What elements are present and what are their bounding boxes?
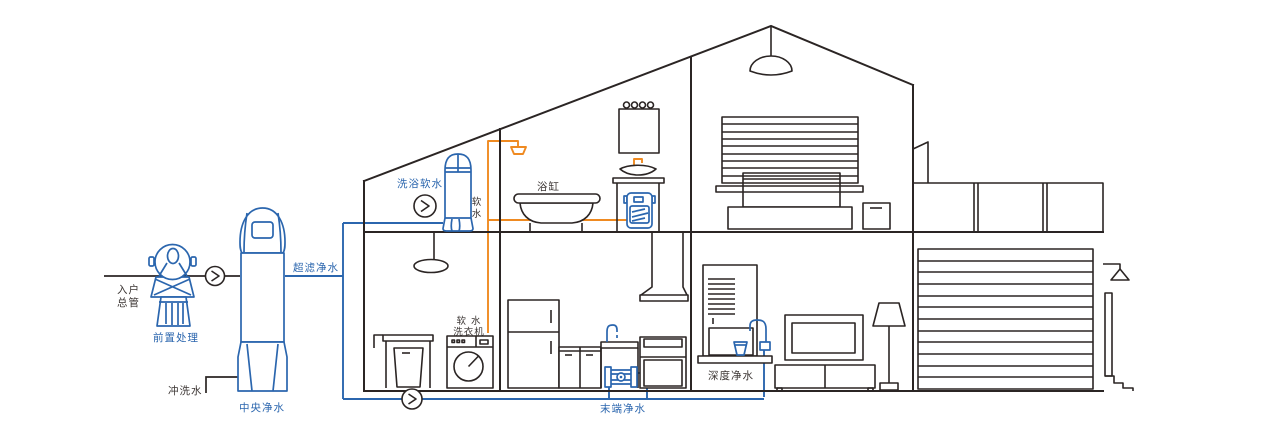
- bathtub: [514, 194, 600, 231]
- flush-water-pipe: [206, 377, 238, 393]
- floor-lamp: [873, 303, 905, 390]
- louver-cabinet: [703, 265, 757, 356]
- washing-machine: [447, 336, 493, 388]
- flow-indicator-inlet: [206, 267, 225, 286]
- label-ultrafiltration: 超滤净水: [293, 261, 339, 274]
- label-terminal-purification: 末端净水: [600, 402, 646, 415]
- label-main-inlet-line2: 总管: [117, 296, 140, 309]
- label-central-purification: 中央净水: [239, 401, 285, 414]
- kitchen-faucet-icon: [607, 325, 617, 342]
- tv: [785, 315, 863, 360]
- flow-indicator-ground: [402, 389, 422, 409]
- downspout: [1105, 293, 1112, 376]
- blinds-window: [716, 117, 863, 192]
- water-cup-icon: [734, 342, 747, 355]
- label-pre-treatment: 前置处理: [153, 331, 199, 344]
- garage-upper-band: [913, 142, 1103, 232]
- label-flush-water: 冲洗水: [168, 384, 203, 397]
- label-soft-water-char2: 水: [472, 208, 483, 220]
- label-soft-water-char1: 软: [472, 196, 483, 208]
- pre-filter-device: [149, 245, 196, 327]
- label-washer-line2: 洗衣机: [453, 326, 485, 338]
- house-water-system-diagram: 入户 总管 前置处理 冲洗水 中央净水 超滤净水 洗浴软水 软 水 浴缸 软 水…: [0, 0, 1280, 434]
- laundry-pendant-lamp: [414, 232, 448, 273]
- range-hood: [640, 232, 688, 301]
- central-purifier-device: [238, 208, 287, 391]
- utility-sink: [374, 335, 433, 388]
- wall-lamp-icon: [1103, 264, 1129, 280]
- label-main-inlet-line1: 入户: [117, 283, 140, 296]
- vanity-mirror: [619, 102, 659, 153]
- label-bath-softening: 洗浴软水: [397, 177, 443, 190]
- stove-oven: [640, 337, 686, 388]
- terminal-filter-device: [605, 367, 637, 387]
- fridge: [508, 300, 559, 388]
- entry-steps: [1105, 376, 1133, 391]
- label-washer-line1: 软 水: [456, 315, 481, 327]
- water-softener-device: [443, 154, 473, 231]
- kitchen-cabinets: [559, 347, 601, 388]
- tv-stand: [775, 365, 875, 391]
- bedroom-pendant-lamp: [750, 26, 792, 75]
- flow-indicator-attic: [414, 195, 436, 217]
- garage-roller-door: [918, 249, 1093, 389]
- diagram-svg: 入户 总管 前置处理 冲洗水 中央净水 超滤净水 洗浴软水 软 水 浴缸 软 水…: [0, 0, 1280, 434]
- label-deep-purification: 深度净水: [708, 369, 754, 382]
- label-bathtub: 浴缸: [537, 180, 560, 193]
- deep-purifier-counter: [698, 356, 772, 363]
- undersink-heater-device: [624, 193, 655, 228]
- nightstand: [863, 203, 890, 229]
- shower-head-icon: [511, 147, 526, 154]
